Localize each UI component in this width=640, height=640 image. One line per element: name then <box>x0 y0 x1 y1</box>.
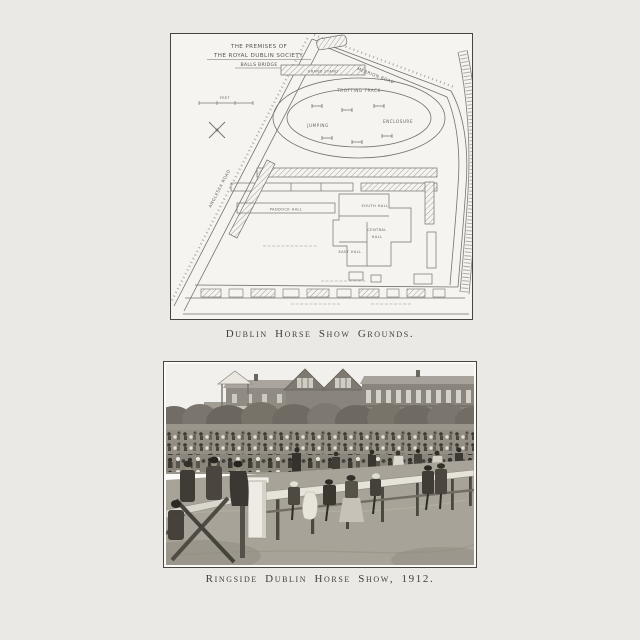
central-hall-label-line1: CENTRAL <box>367 228 386 232</box>
central-hall-label-line2: HALL <box>372 235 383 239</box>
white-pillar <box>245 477 269 538</box>
map-svg: THE PREMISES OF THE ROYAL DUBLIN SOCIETY… <box>171 34 472 319</box>
photo-svg <box>166 364 474 565</box>
map-title-line1: THE PREMISES OF <box>230 44 287 50</box>
photo-figure <box>163 361 477 568</box>
east-hall-label: EAST HALL <box>338 250 361 254</box>
grand-stand-building: GRAND STAND <box>281 65 365 75</box>
map-figure: THE PREMISES OF THE ROYAL DUBLIN SOCIETY… <box>170 33 473 320</box>
map-title: THE PREMISES OF THE ROYAL DUBLIN SOCIETY… <box>207 44 311 68</box>
enclosure-label: ENCLOSURE <box>383 119 413 124</box>
trotting-track-label: TROTTING TRACK <box>336 88 381 93</box>
south-hall-label: SOUTH HALL <box>362 204 389 208</box>
photo-caption: Ringside Dublin Horse Show, 1912. <box>0 573 640 585</box>
grand-stand-label: GRAND STAND <box>308 70 339 74</box>
church-building <box>316 34 347 50</box>
jumping-label: JUMPING <box>306 123 329 128</box>
map-caption: Dublin Horse Show Grounds. <box>0 328 640 340</box>
map-title-line2: THE ROYAL DUBLIN SOCIETY. <box>213 53 304 59</box>
scale-feet-label: FEET <box>220 96 231 100</box>
scale-bar: FEET <box>199 96 253 105</box>
south-boundary-buildings <box>201 289 445 297</box>
merrion-road-label: MERRION ROAD <box>357 66 396 84</box>
paddock-hall-label: PADDOCK HALL <box>270 208 303 212</box>
compass-icon <box>209 122 225 138</box>
book-page: THE PREMISES OF THE ROYAL DUBLIN SOCIETY… <box>0 0 640 640</box>
map-title-line3: BALLS BRIDGE <box>240 62 277 68</box>
